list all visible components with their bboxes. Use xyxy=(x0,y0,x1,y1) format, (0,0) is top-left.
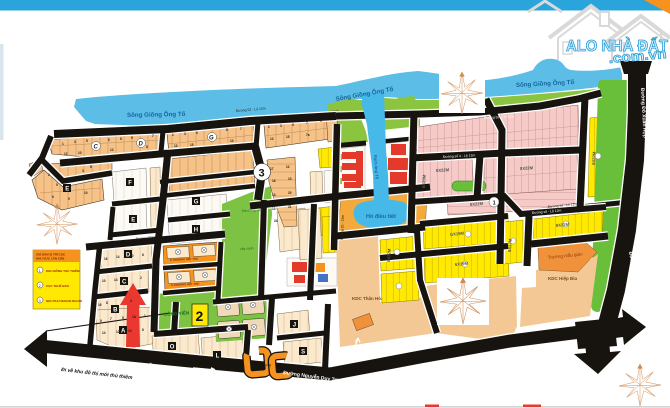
svg-text:KHU ĐÔNG THỦ THIÊM: KHU ĐÔNG THỦ THIÊM xyxy=(46,268,80,273)
svg-text:G: G xyxy=(194,200,199,206)
svg-text:16: 16 xyxy=(98,303,102,307)
svg-text:E: E xyxy=(131,218,135,224)
svg-text:10: 10 xyxy=(102,279,106,283)
svg-text:7: 7 xyxy=(110,317,112,321)
svg-text:S: S xyxy=(301,350,305,356)
svg-text:1: 1 xyxy=(144,314,146,318)
svg-text:D: D xyxy=(139,142,144,148)
svg-text:Hồ điều tiết: Hồ điều tiết xyxy=(366,213,396,220)
svg-text:cây xanh: cây xanh xyxy=(240,246,254,251)
svg-text:20: 20 xyxy=(288,191,292,195)
svg-text:7: 7 xyxy=(240,127,242,131)
svg-text:8: 8 xyxy=(142,253,144,257)
svg-text:6: 6 xyxy=(108,138,110,142)
svg-text:B: B xyxy=(113,308,118,314)
svg-text:O: O xyxy=(170,345,175,351)
svg-text:10: 10 xyxy=(230,139,234,143)
svg-text:KDC Thân Hòa: KDC Thân Hòa xyxy=(352,296,384,301)
svg-text:13: 13 xyxy=(270,137,274,141)
svg-text:KHU PHU NHUAN NGUOI: KHU PHU NHUAN NGUOI xyxy=(46,299,82,303)
svg-text:CỤC THUẾ BAO: CỤC THUẾ BAO xyxy=(46,283,70,288)
svg-text:16: 16 xyxy=(104,257,108,261)
svg-text:4: 4 xyxy=(70,177,72,181)
svg-text:8X22M: 8X22M xyxy=(386,248,392,262)
svg-text:8X22M: 8X22M xyxy=(591,151,597,165)
svg-text:E: E xyxy=(65,187,69,193)
svg-text:A: A xyxy=(121,329,126,335)
svg-text:8X17M: 8X17M xyxy=(507,238,513,252)
svg-text:15: 15 xyxy=(190,143,194,147)
svg-text:9: 9 xyxy=(131,136,133,140)
svg-text:2: 2 xyxy=(48,173,50,177)
svg-text:13: 13 xyxy=(272,207,276,211)
svg-text:8: 8 xyxy=(106,301,108,305)
svg-text:1A: 1A xyxy=(132,315,137,319)
svg-text:14: 14 xyxy=(116,255,120,259)
svg-text:10: 10 xyxy=(128,329,132,333)
svg-text:8: 8 xyxy=(146,145,148,149)
svg-text:C: C xyxy=(94,145,99,151)
svg-text:2: 2 xyxy=(140,276,142,280)
svg-text:3: 3 xyxy=(184,132,186,136)
svg-text:4: 4 xyxy=(130,299,132,303)
svg-text:16: 16 xyxy=(272,179,276,183)
svg-text:.: . xyxy=(40,0,41,1)
svg-text:5: 5 xyxy=(122,316,124,320)
svg-text:10: 10 xyxy=(84,191,88,195)
svg-text:G: G xyxy=(209,136,214,142)
svg-text:10: 10 xyxy=(288,177,292,181)
svg-text:14: 14 xyxy=(114,278,118,282)
svg-text:9: 9 xyxy=(320,119,322,123)
svg-text:KHU VỰC LÂN CẬN: KHU VỰC LÂN CẬN xyxy=(36,256,64,261)
svg-text:15: 15 xyxy=(286,135,290,139)
svg-text:1: 1 xyxy=(268,125,270,129)
svg-text:7: 7 xyxy=(152,134,154,138)
svg-text:14: 14 xyxy=(102,331,106,335)
svg-text:8X20M: 8X20M xyxy=(421,174,427,188)
svg-text:L: L xyxy=(216,354,220,360)
svg-text:9: 9 xyxy=(68,197,70,201)
svg-text:13: 13 xyxy=(174,144,178,148)
svg-text:5: 5 xyxy=(292,123,294,127)
svg-text:H: H xyxy=(194,228,198,234)
svg-text:8X22M: 8X22M xyxy=(520,165,534,171)
svg-text:8X22M: 8X22M xyxy=(436,167,450,173)
svg-text:2: 2 xyxy=(39,284,41,288)
svg-text:12: 12 xyxy=(286,165,290,169)
svg-text:21: 21 xyxy=(288,205,292,209)
svg-text:3: 3 xyxy=(280,124,282,128)
svg-text:1: 1 xyxy=(172,133,174,137)
svg-text:8: 8 xyxy=(120,137,122,141)
svg-text:C: C xyxy=(122,280,127,286)
svg-text:5: 5 xyxy=(86,139,88,143)
svg-text:3: 3 xyxy=(82,169,84,173)
svg-text:7a: 7a xyxy=(306,133,310,137)
svg-text:2: 2 xyxy=(196,308,204,324)
svg-text:24: 24 xyxy=(274,219,278,223)
svg-text:17: 17 xyxy=(270,167,274,171)
svg-text:10: 10 xyxy=(78,151,82,155)
svg-text:1: 1 xyxy=(39,269,41,273)
svg-text:Sông Giồng Ông Tố: Sông Giồng Ông Tố xyxy=(127,110,186,119)
svg-text:1: 1 xyxy=(62,142,64,146)
svg-text:6: 6 xyxy=(154,327,156,331)
svg-text:6: 6 xyxy=(196,131,198,135)
svg-text:12: 12 xyxy=(110,148,114,152)
svg-text:9: 9 xyxy=(100,319,102,323)
svg-text:12: 12 xyxy=(116,330,120,334)
svg-text:10: 10 xyxy=(130,254,134,258)
svg-text:14: 14 xyxy=(272,193,276,197)
svg-text:3: 3 xyxy=(259,168,265,180)
svg-text:8: 8 xyxy=(90,165,92,169)
svg-text:3: 3 xyxy=(39,299,41,303)
svg-text:5: 5 xyxy=(56,183,58,187)
svg-text:1: 1 xyxy=(493,201,496,207)
svg-text:F: F xyxy=(128,181,132,187)
svg-text:KDC Hiệp Bìa: KDC Hiệp Bìa xyxy=(548,276,578,281)
svg-text:3: 3 xyxy=(74,140,76,144)
svg-text:6: 6 xyxy=(52,195,54,199)
svg-text:8: 8 xyxy=(142,328,144,332)
svg-text:J: J xyxy=(293,323,296,329)
svg-text:12: 12 xyxy=(64,152,68,156)
svg-text:7: 7 xyxy=(306,121,308,125)
svg-text:8: 8 xyxy=(226,128,228,132)
